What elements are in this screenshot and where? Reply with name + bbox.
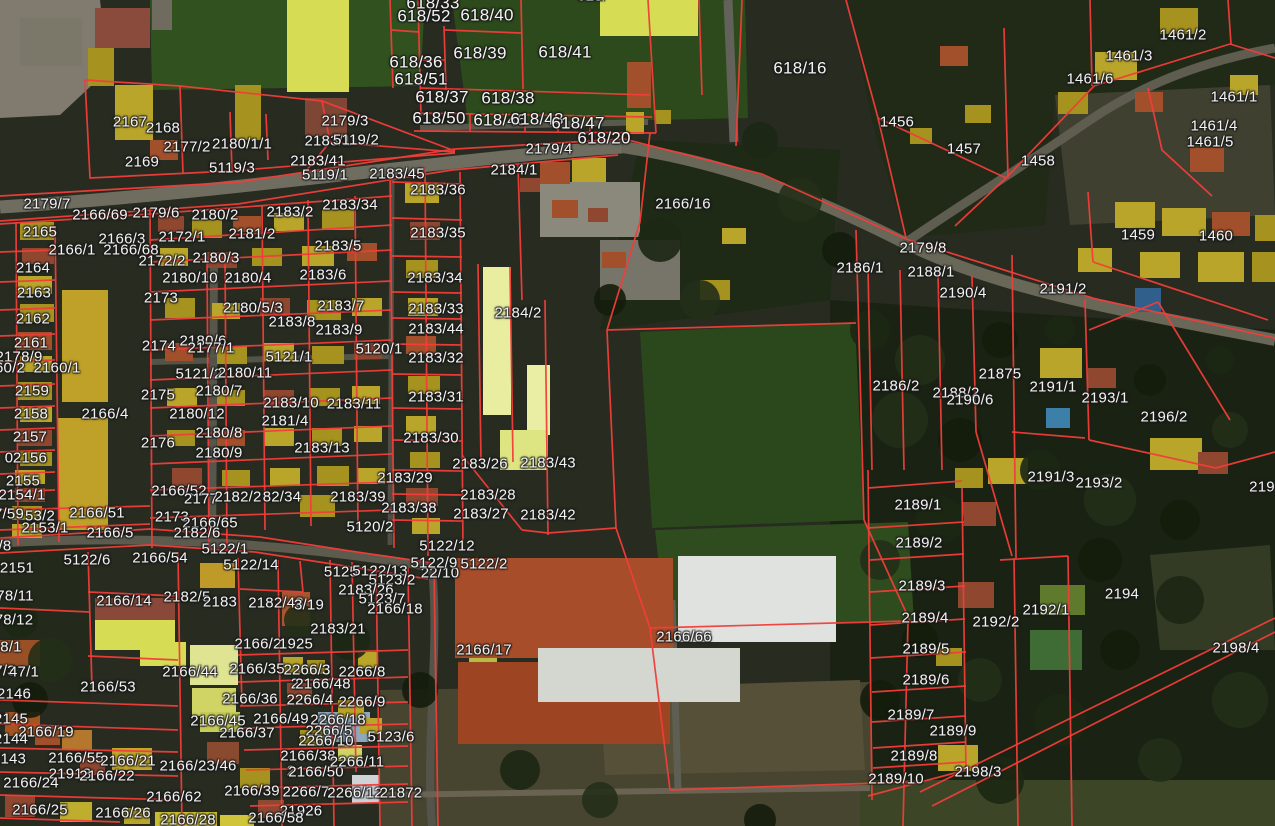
parcel-label: 2183/38 [381, 501, 437, 516]
parcel-label: 2180/2 [191, 208, 238, 223]
parcel-label: 2189/7 [887, 708, 934, 723]
parcel-label: 1461/4 [1190, 119, 1237, 134]
parcel-label: 2159 [15, 384, 49, 399]
parcel-label: 5122/14 [223, 558, 279, 573]
parcel-label: 2180/11 [218, 366, 273, 381]
parcel-label: 2188/1 [907, 265, 954, 280]
parcel-label: 21875 [979, 367, 1022, 382]
parcel-label: 2177 [184, 492, 218, 507]
parcel-label: 2180/7 [195, 384, 242, 399]
parcel-label: 2172/2 [138, 254, 185, 269]
parcel-label: 2183/32 [408, 351, 464, 366]
parcel-label: 78/11 [0, 589, 34, 604]
parcel-label: 2266/12 [327, 786, 383, 801]
parcel-label: 2176 [141, 436, 175, 451]
parcel-label: 2266/10 [298, 734, 354, 749]
parcel-label: 2183/11 [327, 397, 382, 412]
parcel-label: 2183/30 [403, 431, 459, 446]
parcel-label: 2181/4 [261, 414, 308, 429]
parcel-label: 82/34 [263, 490, 302, 505]
parcel-label: 2180/8 [195, 426, 242, 441]
parcel-label: 2146 [0, 687, 31, 702]
parcel-label: 2186/2 [872, 379, 919, 394]
map-canvas[interactable]: 618/618/33618/52618/40618/39618/41618/36… [0, 0, 1275, 826]
parcel-label: 2189/6 [902, 673, 949, 688]
parcel-label: 2193/2 [1075, 476, 1122, 491]
parcel-labels-layer: 618/618/33618/52618/40618/39618/41618/36… [0, 0, 1275, 826]
parcel-label: 2183/13 [294, 441, 350, 456]
parcel-label: 7/59 [0, 507, 24, 522]
parcel-label: 2153/1 [21, 521, 68, 536]
parcel-label: 2183/5 [314, 239, 361, 254]
parcel-label: 2151 [0, 561, 34, 576]
parcel-label: 2191/2 [1039, 282, 1086, 297]
parcel-label: 1461/1 [1210, 90, 1257, 105]
parcel-label: 2189/1 [894, 498, 941, 513]
parcel-label: 2174 [142, 339, 176, 354]
parcel-label: 2165 [23, 225, 57, 240]
parcel-label: 2179/4 [525, 142, 572, 157]
parcel-label: 1461/5 [1186, 135, 1233, 150]
parcel-label: 2143 [0, 752, 26, 767]
parcel-label: 21872 [380, 786, 423, 801]
parcel-label: 2183/21 [310, 622, 366, 637]
parcel-label: 2189/10 [868, 772, 924, 787]
parcel-label: 1925 [279, 637, 313, 652]
parcel-label: 2181/2 [228, 227, 275, 242]
parcel-label: 2166/26 [95, 806, 151, 821]
parcel-label: 2180/12 [169, 407, 225, 422]
parcel-label: 618/51 [394, 71, 447, 88]
parcel-label: 1460 [1199, 229, 1233, 244]
parcel-label: 2183/28 [460, 488, 516, 503]
parcel-label: 2166/69 [72, 208, 128, 223]
parcel-label: 2166/66 [656, 630, 712, 645]
parcel-label: 5119/1 [302, 168, 348, 183]
parcel-label: 2183/6 [299, 268, 346, 283]
parcel-label: 2186/1 [836, 261, 883, 276]
parcel-label: 2266/4 [286, 693, 333, 708]
parcel-label: 2166/51 [69, 506, 125, 521]
parcel-label: 618/39 [453, 45, 506, 62]
parcel-label: 1461/2 [1159, 28, 1206, 43]
parcel-label: 2166/2 [234, 637, 281, 652]
parcel-label: 2183/27 [453, 507, 509, 522]
parcel-label: 2166/35 [229, 662, 285, 677]
parcel-label: 2183/2 [266, 205, 313, 220]
parcel-label: 2191/1 [1029, 380, 1076, 395]
parcel-label: 618/ [577, 0, 607, 4]
parcel-label: 2157 [13, 430, 47, 445]
parcel-label: 1458 [1021, 154, 1055, 169]
parcel-label: 2183/29 [377, 471, 433, 486]
parcel-label: 2266/11 [330, 755, 385, 770]
parcel-label: 2192/1 [1022, 603, 1069, 618]
parcel-label: 618/38 [481, 90, 534, 107]
parcel-label: 1456 [880, 115, 914, 130]
parcel-label: 2173 [144, 291, 178, 306]
parcel-label: 5122/1 [201, 542, 248, 557]
parcel-label: /8 [0, 539, 11, 554]
parcel-label: 2183/7 [317, 299, 364, 314]
parcel-label: 2179/3 [321, 114, 368, 129]
parcel-label: 618/52 [397, 8, 450, 25]
parcel-label: 2166/22 [79, 769, 135, 784]
parcel-label: 5120/2 [346, 520, 393, 535]
parcel-label: 5122/2 [460, 557, 507, 572]
parcel-label: 618/40 [460, 7, 513, 24]
parcel-label: 618/36 [389, 54, 442, 71]
parcel-label: 219 [1249, 480, 1275, 495]
parcel-label: 2183/43 [520, 456, 576, 471]
parcel-label: 2189/9 [929, 724, 976, 739]
parcel-label: 5120/1 [355, 342, 402, 357]
parcel-label: 2183/42 [520, 508, 576, 523]
parcel-label: 2166/17 [456, 643, 512, 658]
parcel-label: 2166/54 [132, 551, 188, 566]
parcel-label: 2183/34 [407, 271, 463, 286]
parcel-label: 2183 [203, 595, 237, 610]
parcel-label: 2177/1 [187, 341, 234, 356]
parcel-label: 5122/12 [419, 539, 475, 554]
parcel-label: 2154/1 [0, 488, 46, 503]
parcel-label: 2166/4 [81, 407, 128, 422]
parcel-label: 2166/14 [96, 594, 152, 609]
parcel-label: 2189/5 [902, 642, 949, 657]
parcel-label: 2183/35 [410, 226, 466, 241]
parcel-label: 2198/4 [1212, 641, 1259, 656]
parcel-label: 2183/45 [369, 167, 425, 182]
parcel-label: 2166/16 [655, 197, 711, 212]
parcel-label: 2166/18 [367, 602, 423, 617]
parcel-label: 2179/8 [899, 241, 946, 256]
parcel-label: 2177/2 [163, 140, 210, 155]
parcel-label: 2179/6 [132, 206, 179, 221]
parcel-label: 5119/3 [209, 161, 255, 176]
parcel-label: 2166/53 [80, 680, 136, 695]
parcel-label: 2166/24 [3, 776, 59, 791]
parcel-label: 2172/1 [158, 230, 205, 245]
parcel-label: 2166/28 [160, 813, 216, 826]
parcel-label: 2192/2 [972, 615, 1019, 630]
parcel-label: 2183/8 [268, 315, 315, 330]
parcel-label: 2144 [0, 732, 28, 747]
parcel-label: 2166/44 [162, 665, 218, 680]
parcel-label: 2166/55 [48, 751, 104, 766]
parcel-label: 5121/2 [175, 367, 222, 382]
parcel-label: 2166/38 [280, 749, 336, 764]
parcel-label: 618/20 [577, 130, 630, 147]
parcel-label: 2163 [17, 286, 51, 301]
parcel-label: 618/37 [415, 89, 468, 106]
parcel-label: 1459 [1121, 228, 1155, 243]
parcel-label: 2164 [16, 261, 50, 276]
parcel-label: 2166/62 [146, 790, 202, 805]
parcel-label: 2190/6 [946, 393, 993, 408]
parcel-label: 2194 [1105, 587, 1139, 602]
parcel-label: 2184/1 [490, 163, 537, 178]
parcel-label: 2180/10 [162, 271, 218, 286]
parcel-label: 5122/9 [410, 556, 457, 571]
parcel-label: 2183/10 [263, 396, 319, 411]
parcel-label: 618/50 [412, 110, 465, 127]
parcel-label: 2180/1/1 [212, 137, 272, 152]
parcel-label: 2180/3 [192, 251, 239, 266]
parcel-label: 2166/39 [224, 784, 280, 799]
parcel-label: 1461/3 [1105, 49, 1152, 64]
parcel-label: 2169 [125, 155, 159, 170]
parcel-label: 2266/7 [282, 785, 329, 800]
parcel-label: 618/41 [538, 44, 591, 61]
parcel-label: 2166/48 [295, 677, 351, 692]
parcel-label: 2182/6 [173, 526, 220, 541]
parcel-label: 2166/25 [12, 803, 68, 818]
parcel-label: 8/1 [0, 640, 21, 655]
parcel-label: 2183/36 [410, 183, 466, 198]
parcel-label: 5121/1 [265, 350, 312, 365]
parcel-label: 5122/6 [63, 553, 110, 568]
parcel-label: 1461/6 [1066, 72, 1113, 87]
parcel-label: 2156 [13, 451, 47, 466]
parcel-label: 2166/1 [48, 243, 95, 258]
parcel-label: 2198/3 [954, 765, 1001, 780]
parcel-label: 2160/1 [33, 361, 80, 376]
parcel-label: 2183/33 [408, 302, 464, 317]
parcel-label: 1457 [947, 142, 981, 157]
parcel-label: 2196/2 [1140, 410, 1187, 425]
parcel-label: 2183/44 [408, 322, 464, 337]
parcel-label: 2189/8 [890, 749, 937, 764]
parcel-label: 2166/21 [100, 754, 156, 769]
parcel-label: 2266/9 [338, 695, 385, 710]
parcel-label: 2183/39 [330, 490, 386, 505]
parcel-label: 5123/6 [367, 730, 414, 745]
parcel-label: 2183/34 [322, 198, 378, 213]
parcel-label: 2180/4 [224, 271, 271, 286]
parcel-label: 78/12 [0, 613, 33, 628]
parcel-label: 5119/2 [333, 133, 379, 148]
parcel-label: 2183/9 [315, 323, 362, 338]
parcel-label: 2189/2 [895, 536, 942, 551]
parcel-label: 3/19 [294, 598, 324, 613]
parcel-label: 2190/4 [939, 286, 986, 301]
parcel-label: 47/1 [9, 665, 39, 680]
parcel-label: 2183/26 [452, 457, 508, 472]
parcel-label: 2184/2 [494, 306, 541, 321]
parcel-label: 2158 [14, 407, 48, 422]
parcel-label: 2189/3 [898, 579, 945, 594]
parcel-label: 2175 [141, 388, 175, 403]
parcel-label: 2166/5 [86, 526, 133, 541]
parcel-label: 2166/36 [222, 692, 278, 707]
parcel-label: 2193/1 [1081, 391, 1128, 406]
parcel-label: 618/16 [773, 60, 826, 77]
parcel-label: 60/2 [0, 361, 25, 376]
parcel-label: 2168 [146, 121, 180, 136]
parcel-label: 2191/3 [1027, 470, 1074, 485]
parcel-label: 2166/37 [219, 726, 275, 741]
parcel-label: 2166/23/46 [159, 759, 236, 774]
parcel-label: 2180/9 [195, 446, 242, 461]
parcel-label: 2183/31 [408, 390, 464, 405]
parcel-label: 2179/7 [23, 197, 70, 212]
parcel-label: 2167 [113, 115, 147, 130]
parcel-label: 2162 [16, 312, 50, 327]
parcel-label: 2166/58 [248, 811, 304, 826]
parcel-label: 2189/4 [901, 611, 948, 626]
parcel-label: 2182/2 [214, 490, 261, 505]
